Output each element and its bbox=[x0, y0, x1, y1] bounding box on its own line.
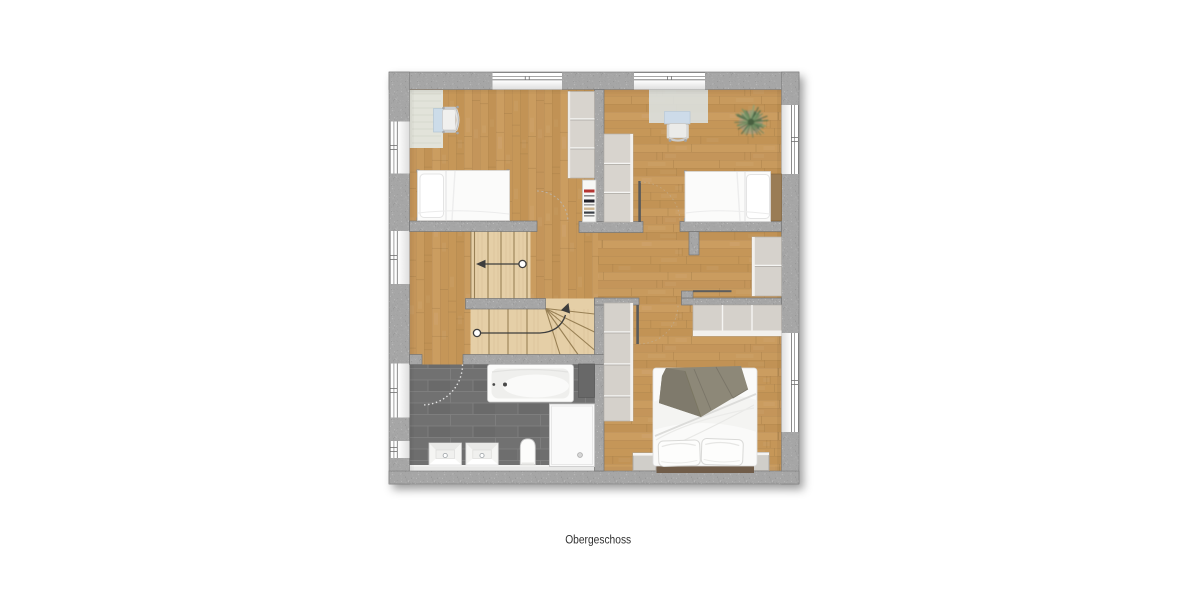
svg-text:Obergeschoss: Obergeschoss bbox=[565, 533, 631, 547]
